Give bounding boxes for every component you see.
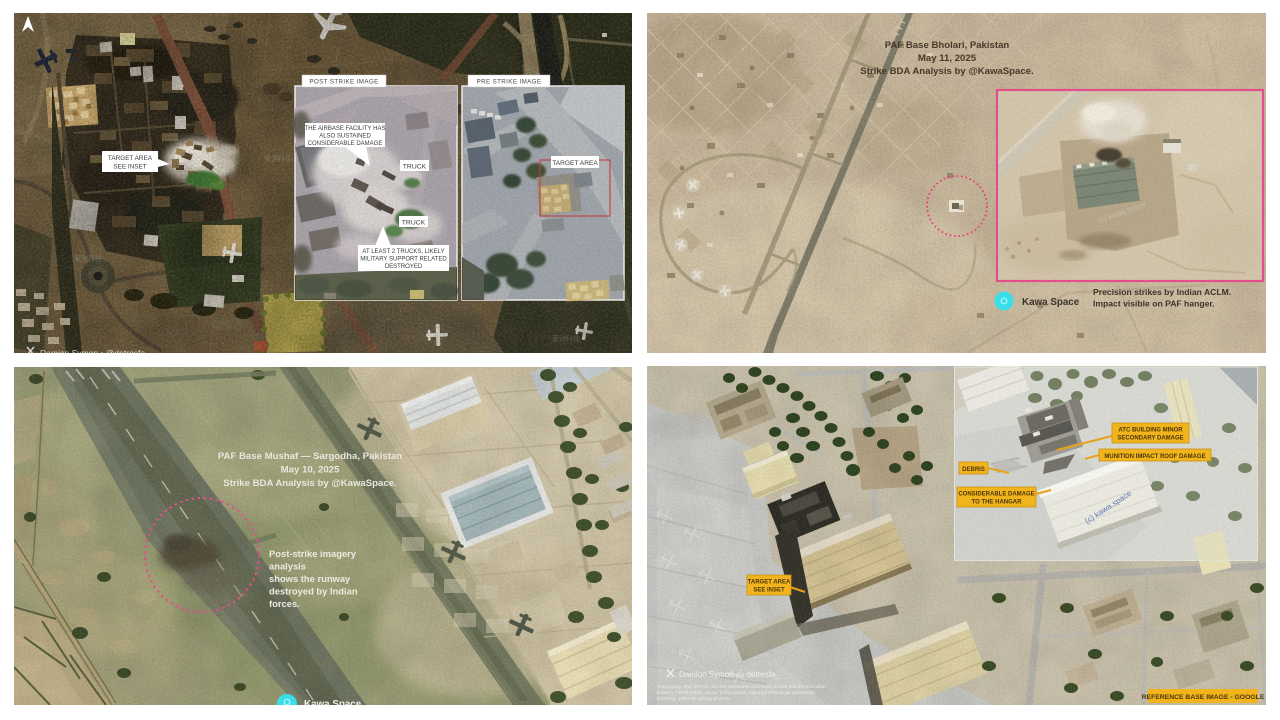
svg-text:MILITARY SUPPORT RELATED: MILITARY SUPPORT RELATED: [360, 257, 447, 263]
svg-text:SECONDARY DAMAGE: SECONDARY DAMAGE: [1117, 436, 1183, 442]
svg-text:THE AIRBASE FACILITY HAS: THE AIRBASE FACILITY HAS: [305, 126, 386, 132]
svg-text:SEE INSET: SEE INSET: [753, 588, 785, 594]
svg-text:forces.: forces.: [269, 598, 300, 609]
svg-text:PAF Base Bholari, Pakistan: PAF Base Bholari, Pakistan: [885, 40, 1010, 51]
svg-text:MUNITION IMPACT ROOF DAMAGE: MUNITION IMPACT ROOF DAMAGE: [1104, 454, 1205, 460]
svg-text:TARGET AREA: TARGET AREA: [552, 160, 598, 167]
svg-text:DEBRIS: DEBRIS: [962, 467, 985, 473]
svg-text:SEE INSET: SEE INSET: [113, 164, 146, 171]
svg-text:AT LEAST 2 TRUCKS, LIKELY: AT LEAST 2 TRUCKS, LIKELY: [362, 249, 444, 255]
svg-text:Post-strike imagery: Post-strike imagery: [269, 548, 357, 559]
svg-text:Kawa Space: Kawa Space: [1022, 297, 1080, 308]
svg-text:DESTROYED: DESTROYED: [385, 264, 423, 270]
svg-text:May 10, 2025: May 10, 2025: [281, 465, 340, 476]
svg-text:destroyed by Indian: destroyed by Indian: [269, 586, 358, 597]
svg-text:POST STRIKE IMAGE: POST STRIKE IMAGE: [309, 79, 378, 86]
svg-text:shows the runway: shows the runway: [269, 573, 351, 584]
svg-text:analysis: analysis: [269, 561, 306, 572]
svg-text:May 11, 2025: May 11, 2025: [918, 53, 977, 64]
svg-text:REFERENCE BASE IMAGE - GOOGLE: REFERENCE BASE IMAGE - GOOGLE: [1142, 694, 1265, 701]
svg-text:CONSIDERABLE DAMAGE: CONSIDERABLE DAMAGE: [958, 492, 1034, 498]
svg-text:Damion Symon • @detresfa: Damion Symon • @detresfa: [40, 348, 145, 353]
svg-text:TRUCK: TRUCK: [403, 164, 427, 171]
svg-text:ALSO SUSTAINED: ALSO SUSTAINED: [319, 134, 371, 140]
svg-text:Damion Symon via detresfa_: Damion Symon via detresfa_: [679, 670, 780, 679]
svg-text:爱测科技: 爱测科技: [264, 154, 292, 163]
svg-text:Impact visible on PAF hanger.: Impact visible on PAF hanger.: [1093, 299, 1215, 309]
svg-text:TARGET AREA: TARGET AREA: [748, 580, 791, 586]
svg-text:Precision strikes by Indian AC: Precision strikes by Indian ACLM.: [1093, 287, 1231, 297]
svg-text:TO THE HANGAR: TO THE HANGAR: [972, 500, 1023, 506]
svg-text:Strike BDA Analysis by @KawaSp: Strike BDA Analysis by @KawaSpace.: [223, 478, 396, 489]
svg-text:Sourcing: authentic overlay an: Sourcing: authentic overlay analysis: [657, 696, 731, 701]
svg-text:ATC BUILDING MINOR: ATC BUILDING MINOR: [1118, 428, 1183, 434]
svg-text:爱测科技: 爱测科技: [74, 254, 102, 263]
svg-text:Strike BDA Analysis by @KawaSp: Strike BDA Analysis by @KawaSpace.: [860, 66, 1033, 77]
svg-text:CONSIDERABLE DAMAGE: CONSIDERABLE DAMAGE: [308, 141, 383, 147]
svg-text:PAF Base Mushaf — Sargodha, Pa: PAF Base Mushaf — Sargodha, Pakistan: [218, 451, 402, 462]
svg-text:PRE STRIKE IMAGE: PRE STRIKE IMAGE: [477, 79, 542, 86]
svg-text:Imagery ©2025 Airbus, Maxar Te: Imagery ©2025 Airbus, Maxar Technologies…: [657, 689, 815, 695]
svg-text:TARGET AREA: TARGET AREA: [108, 155, 153, 162]
svg-text:TRUCK: TRUCK: [402, 220, 426, 227]
svg-text:Kawa Space: Kawa Space: [304, 699, 362, 705]
svg-text:Topography: Esri, CGIAR, and t: Topography: Esri, CGIAR, and the operati…: [657, 683, 826, 689]
svg-text:爱测科技: 爱测科技: [552, 334, 580, 343]
